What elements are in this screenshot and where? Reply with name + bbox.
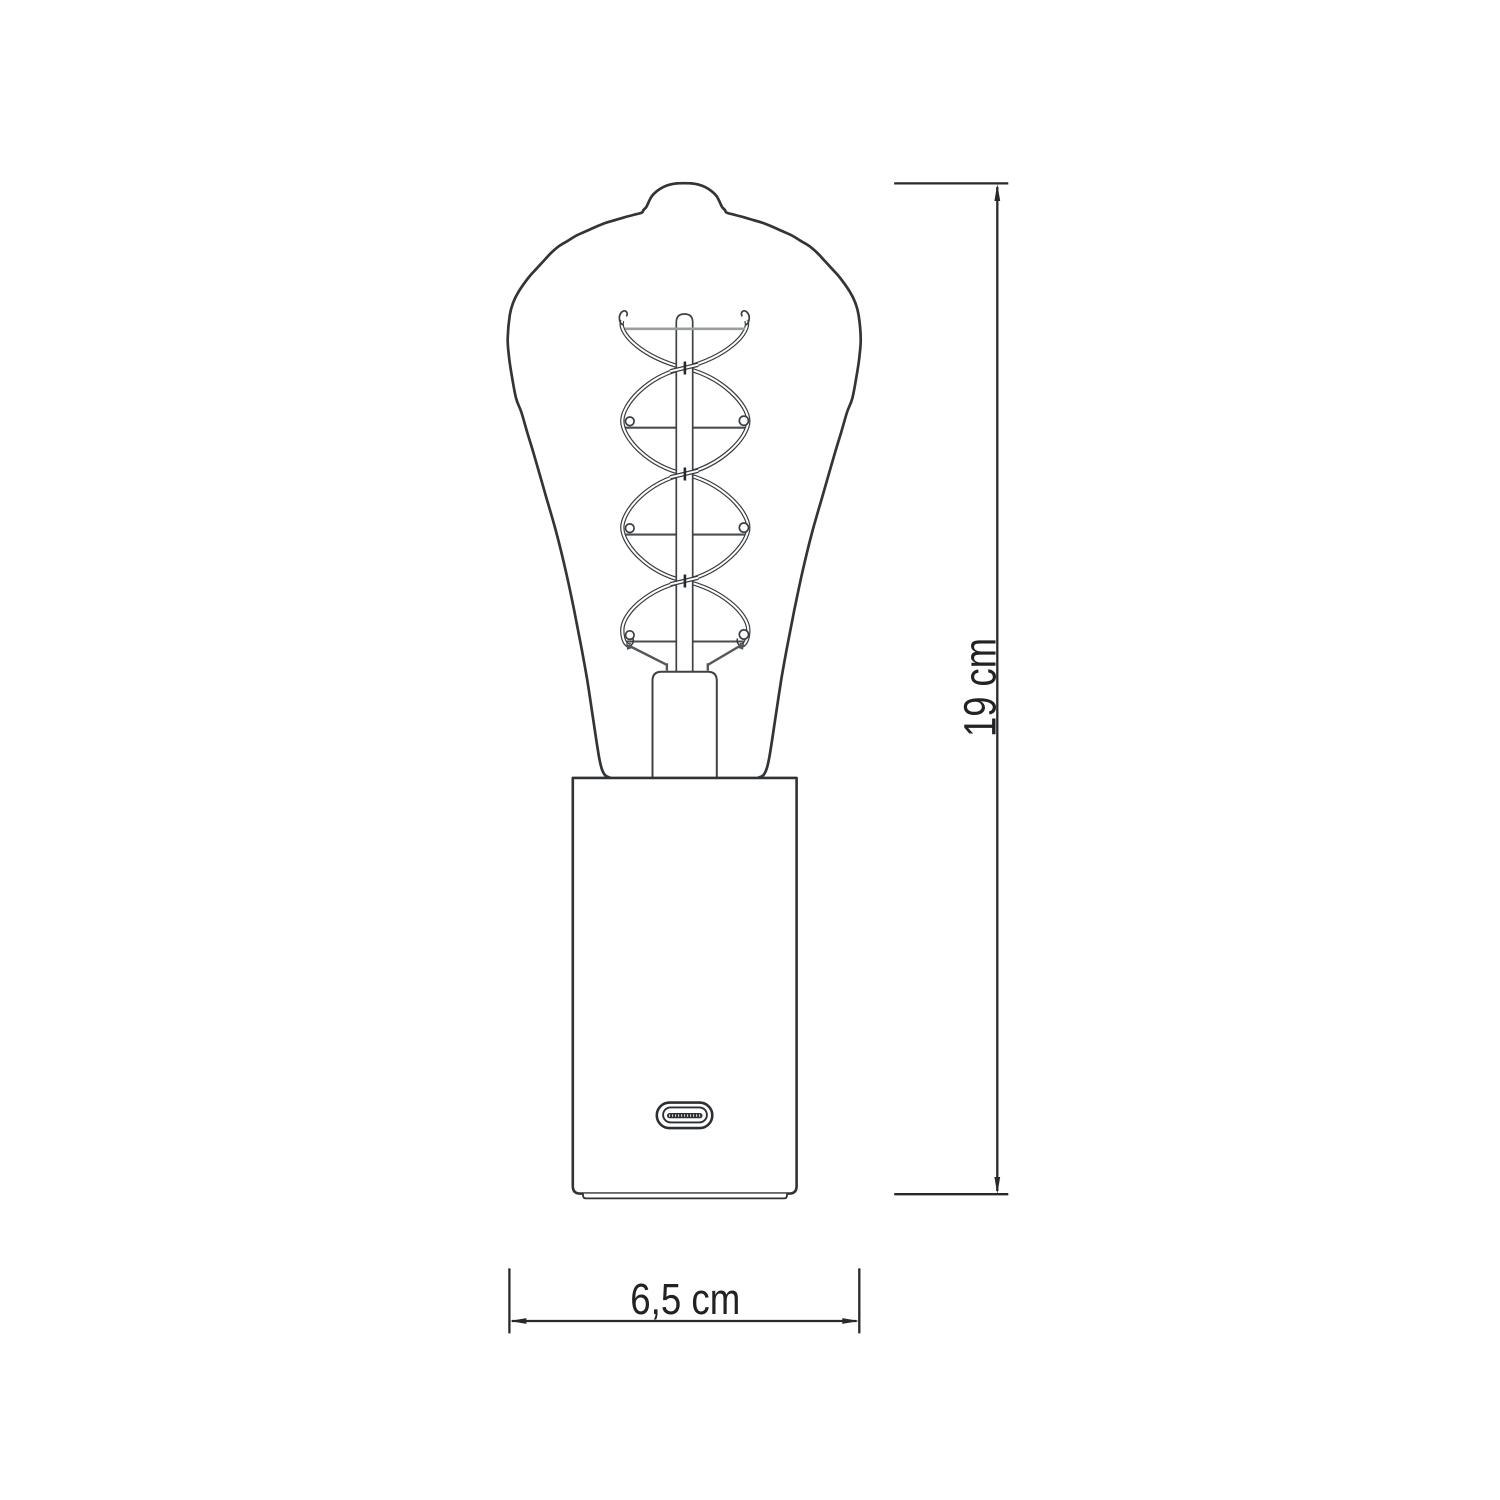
- svg-text:6,5 cm: 6,5 cm: [630, 1275, 740, 1324]
- svg-text:19 cm: 19 cm: [954, 638, 1005, 737]
